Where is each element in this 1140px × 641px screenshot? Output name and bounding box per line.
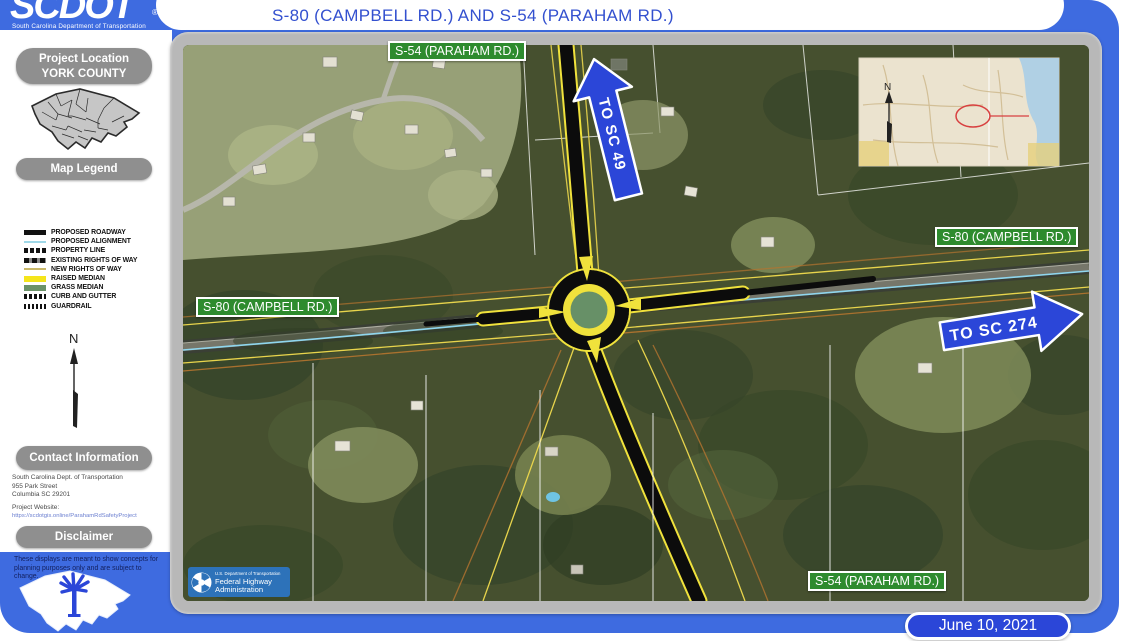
legend-swatch-raised-median	[24, 276, 46, 282]
scdot-logo-tagline: South Carolina Department of Transportat…	[12, 23, 146, 30]
legend-item: RAISED MEDIAN	[24, 274, 164, 283]
legend-item: PROPOSED ALIGNMENT	[24, 237, 164, 246]
road-label-campbell-right: S-80 (CAMPBELL RD.)	[935, 227, 1078, 247]
contact-address-line: South Carolina Dept. of Transportation	[12, 474, 123, 483]
fhwa-logo: U.S. Department of Transportation Federa…	[188, 567, 290, 597]
legend-item: PROPERTY LINE	[24, 246, 164, 255]
aerial-photo: N TO SC 49 TO SC 274	[183, 45, 1089, 601]
sidebar: Project Location YORK COUNTY Map Legend …	[0, 30, 172, 552]
scdot-project-map-page: S-80 (CAMPBELL RD.) AND S-54 (PARAHAM RD…	[0, 0, 1140, 641]
date-badge: June 10, 2021	[905, 612, 1071, 640]
contact-address-line: 955 Park Street	[12, 483, 123, 492]
legend-item: CURB AND GUTTER	[24, 292, 164, 301]
map-legend: PROPOSED ROADWAY PROPOSED ALIGNMENT PROP…	[24, 228, 164, 311]
legend-swatch-guardrail	[24, 304, 46, 309]
legend-swatch-grass-median	[24, 285, 46, 291]
legend-item: GUARDRAIL	[24, 302, 164, 311]
north-arrow-icon: N	[52, 330, 96, 440]
road-label-paraham-top: S-54 (PARAHAM RD.)	[388, 41, 526, 61]
project-website-label: Project Website:	[12, 504, 59, 511]
registered-mark: ®	[152, 8, 158, 17]
legend-swatch-proposed-roadway	[24, 230, 46, 235]
project-location-label: Project Location	[16, 52, 152, 67]
road-label-paraham-bottom: S-54 (PARAHAM RD.)	[808, 571, 946, 591]
legend-swatch-existing-row	[24, 258, 46, 263]
legend-item: EXISTING RIGHTS OF WAY	[24, 256, 164, 265]
contact-address-line: Columbia SC 29201	[12, 491, 123, 500]
location-inset-map: N	[859, 58, 1059, 166]
legend-item: GRASS MEDIAN	[24, 283, 164, 292]
disclaimer-header: Disclaimer	[16, 526, 152, 548]
inset-north-label: N	[884, 82, 891, 93]
contact-information-header: Contact Information	[16, 446, 152, 470]
legend-swatch-curb-gutter	[24, 294, 46, 299]
legend-swatch-proposed-alignment	[24, 241, 46, 243]
aerial-map: N TO SC 49 TO SC 274	[183, 45, 1089, 601]
legend-swatch-new-row	[24, 268, 46, 270]
contact-address: South Carolina Dept. of Transportation 9…	[12, 474, 123, 500]
palmetto-state-logo	[16, 568, 134, 632]
project-location-value: YORK COUNTY	[16, 67, 152, 82]
road-label-campbell-left: S-80 (CAMPBELL RD.)	[196, 297, 339, 317]
fhwa-line2: Administration	[215, 586, 280, 594]
project-location-badge: Project Location YORK COUNTY	[16, 48, 152, 84]
project-website-link[interactable]: https://scdotgis.online/ParahamRdSafetyP…	[12, 513, 137, 519]
legend-item: PROPOSED ROADWAY	[24, 228, 164, 237]
legend-item: NEW RIGHTS OF WAY	[24, 265, 164, 274]
fhwa-icon	[191, 572, 212, 593]
map-legend-header: Map Legend	[16, 158, 152, 180]
sc-county-map	[26, 86, 144, 156]
page-title: S-80 (CAMPBELL RD.) AND S-54 (PARAHAM RD…	[272, 6, 674, 26]
north-label: N	[69, 331, 78, 346]
legend-swatch-property-line	[24, 248, 46, 253]
